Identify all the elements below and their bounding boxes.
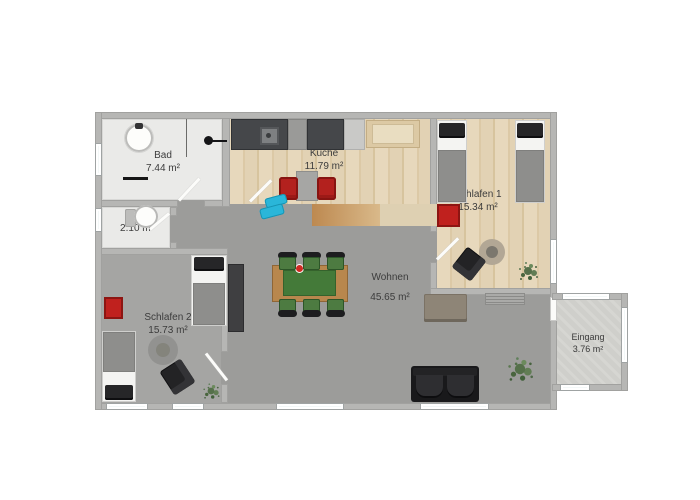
wall [95,248,228,255]
table-green-top [283,270,336,296]
bed-single [437,120,467,203]
window [550,239,557,284]
room-label-kueche: Küche 11.79 m² [294,148,354,173]
room-name: Bad [133,150,193,162]
bed-blanket [438,150,466,202]
floor-plan: Bad 7.44 m² WC 2.10 m² Küche 11.79 m² Sc… [0,0,700,500]
bed-pillow [439,123,465,138]
bed-blanket [516,150,544,202]
chair-back [326,310,345,317]
red-cabinet [104,297,123,319]
sofa-taupe [424,294,467,322]
window [560,384,590,391]
chair-seat [327,257,344,270]
wall-fixture-icon [212,140,227,142]
window [172,403,204,410]
chair-back [302,310,321,317]
window [95,143,102,176]
bed-pillow [194,257,224,271]
window [276,403,344,410]
chair-seat [279,257,296,270]
wall [95,200,178,207]
wall-outer-top [95,112,557,119]
room-label-wohnen: Wohnen 45.65 m² [350,272,430,304]
dining-chair [278,252,297,270]
round-rug [148,335,178,365]
bed-single [191,255,227,326]
wall-shelf [485,293,525,305]
plant [198,378,224,404]
wall [170,207,177,216]
window [420,403,489,410]
dining-chair [302,299,321,317]
washbasin [125,124,153,152]
bed-pillow [105,385,133,400]
sideboard-light-section [380,204,437,226]
wall [222,112,230,207]
wood-cabinet-panel [372,124,414,144]
dining-chair [326,252,345,270]
bed-single [515,120,545,203]
room-label-eingang: Eingang 3.76 m² [555,332,621,355]
sofa-cushion [447,375,474,398]
wardrobe-dark [228,264,244,332]
room-area: 7.44 m² [133,163,193,175]
dining-table [272,265,348,302]
kitchen-chair-red [317,177,336,200]
window [621,307,628,363]
room-area: 3.76 m² [555,344,621,355]
sofa-cushion [416,375,443,398]
stove-counter [307,119,344,150]
bed-blanket [103,332,135,372]
dining-chair [326,299,345,317]
plant [501,350,540,389]
bed-blanket [193,283,225,325]
window [106,403,148,410]
radiator-bar [123,177,148,180]
sofa-black [411,366,479,402]
chair-back [278,310,297,317]
chair-seat [303,257,320,270]
bed-pillow [517,123,543,138]
room-area: 45.65 m² [350,292,430,304]
bed-single [102,331,136,402]
room-name: Eingang [555,332,621,343]
window [95,208,102,232]
entrance-door [550,297,557,321]
sideboard-wood-section [312,204,380,226]
dining-chair [278,299,297,317]
room-name: Wohnen [350,272,430,284]
dishwasher [288,119,307,150]
dining-chair [302,252,321,270]
plant [513,256,543,286]
shower-divider [186,119,187,157]
window [562,293,610,300]
fridge [344,119,365,150]
room-label-bad: Bad 7.44 m² [133,150,193,175]
sideboard [312,204,437,226]
kitchen-sink [260,127,279,145]
red-cabinet [437,204,460,227]
kitchen-table [296,171,318,201]
